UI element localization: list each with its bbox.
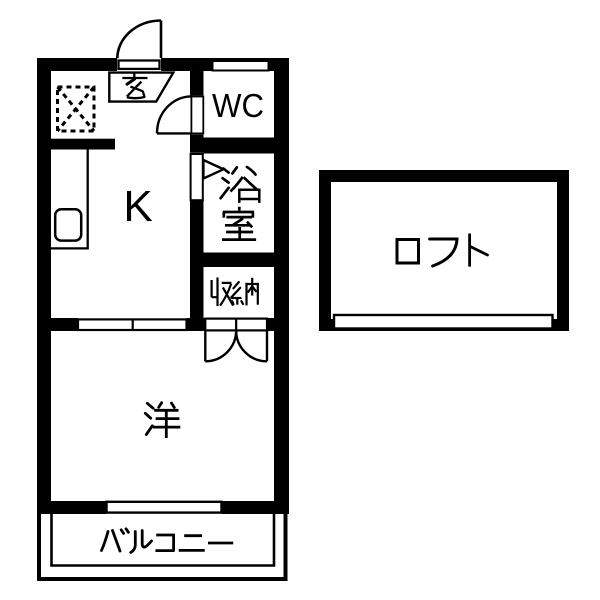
svg-text:WC: WC — [212, 88, 264, 125]
svg-text:K: K — [123, 182, 152, 231]
